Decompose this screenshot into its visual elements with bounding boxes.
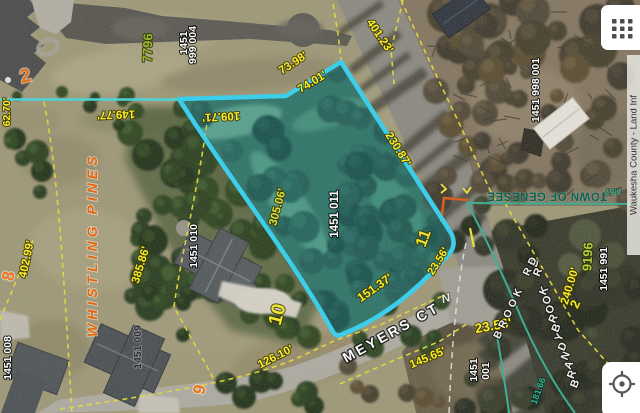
svg-text:Waukesha County - Land Inf: Waukesha County - Land Inf: [629, 95, 640, 215]
svg-text:1451 010: 1451 010: [188, 224, 200, 268]
svg-text:1451: 1451: [468, 358, 480, 382]
svg-text:7796: 7796: [140, 33, 156, 62]
svg-text:TOWN OF GENESEE: TOWN OF GENESEE: [487, 190, 607, 202]
svg-text:001: 001: [480, 362, 492, 380]
svg-text:1451 008: 1451 008: [2, 336, 14, 380]
svg-text:1451 009: 1451 009: [132, 325, 144, 369]
svg-text:999 004: 999 004: [187, 26, 199, 64]
svg-text:62.70': 62.70': [1, 98, 13, 127]
svg-text:1451 991: 1451 991: [598, 247, 610, 291]
svg-text:9196: 9196: [579, 242, 595, 272]
svg-text:1451 998 001: 1451 998 001: [530, 58, 542, 122]
svg-text:1451 011: 1451 011: [329, 190, 341, 238]
svg-text:WHISTLING PINES: WHISTLING PINES: [84, 153, 100, 337]
svg-text:109.71': 109.71': [202, 109, 241, 123]
svg-text:149.77': 149.77': [97, 107, 136, 120]
